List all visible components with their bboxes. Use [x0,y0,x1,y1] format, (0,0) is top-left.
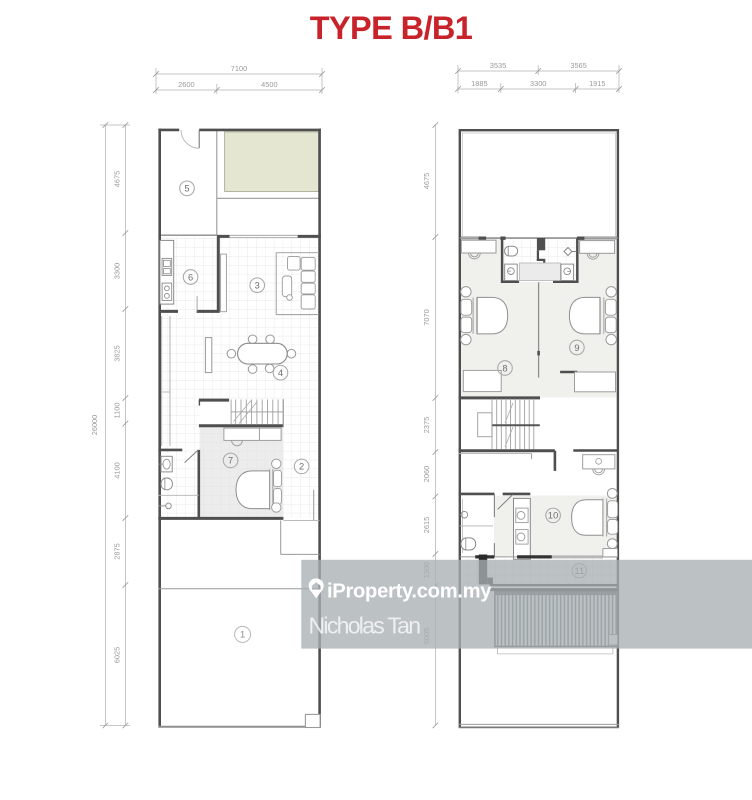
svg-text:2615: 2615 [422,517,431,533]
svg-text:1885: 1885 [471,79,487,88]
svg-text:2375: 2375 [422,417,431,433]
svg-text:1915: 1915 [589,79,605,88]
svg-text:7100: 7100 [231,64,247,73]
svg-text:9: 9 [574,343,579,353]
svg-text:6025: 6025 [113,647,122,663]
svg-text:4100: 4100 [113,462,122,478]
svg-text:4675: 4675 [422,173,431,189]
svg-text:5: 5 [184,184,189,194]
svg-text:3: 3 [255,281,260,291]
svg-text:1: 1 [240,630,245,640]
svg-text:3535: 3535 [490,61,506,70]
svg-text:26000: 26000 [90,415,99,436]
svg-text:1100: 1100 [113,403,122,419]
svg-text:2: 2 [299,462,304,472]
svg-text:7: 7 [228,456,233,466]
svg-text:4675: 4675 [113,171,122,187]
svg-text:4500: 4500 [261,80,277,89]
svg-text:iProperty.com.my: iProperty.com.my [327,581,492,603]
svg-text:7070: 7070 [422,309,431,325]
svg-text:8: 8 [502,363,507,373]
svg-text:4: 4 [278,368,283,378]
svg-text:2060: 2060 [422,466,431,482]
svg-text:TYPE B/B1: TYPE B/B1 [310,10,473,46]
svg-text:3300: 3300 [530,79,546,88]
svg-text:3825: 3825 [113,345,122,361]
svg-text:6: 6 [188,272,193,282]
svg-text:2875: 2875 [113,543,122,559]
svg-text:Nicholas Tan: Nicholas Tan [309,613,421,639]
svg-text:3565: 3565 [570,61,586,70]
svg-text:3300: 3300 [113,263,122,279]
svg-text:2600: 2600 [178,80,194,89]
svg-text:10: 10 [548,511,558,521]
